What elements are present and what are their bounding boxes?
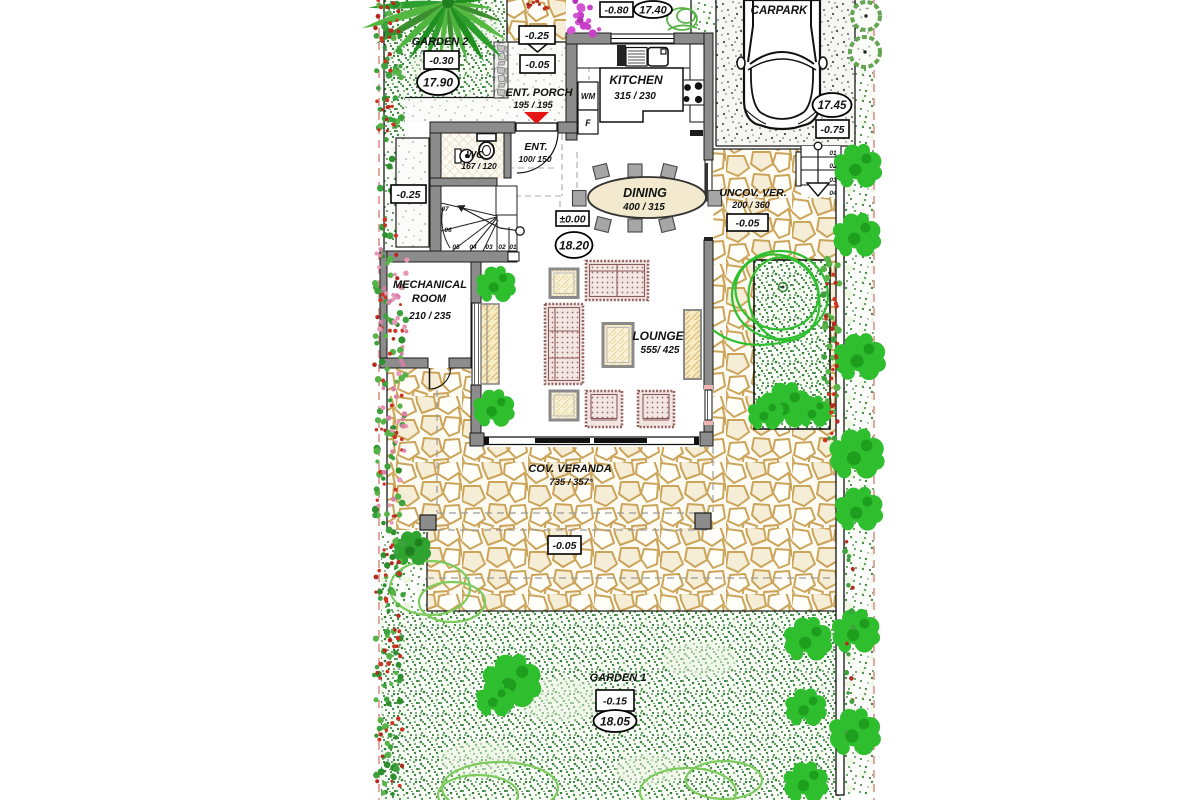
svg-text:735 / 357°: 735 / 357° bbox=[549, 477, 593, 488]
svg-text:-0.75: -0.75 bbox=[821, 124, 845, 136]
svg-text:04: 04 bbox=[469, 244, 477, 251]
svg-text:WC: WC bbox=[466, 149, 484, 161]
svg-text:02: 02 bbox=[498, 244, 506, 251]
svg-text:195 / 195: 195 / 195 bbox=[513, 100, 553, 111]
svg-text:-0.05: -0.05 bbox=[526, 59, 550, 71]
svg-text:555/ 425: 555/ 425 bbox=[641, 345, 680, 356]
svg-text:F: F bbox=[585, 118, 591, 128]
svg-text:LOUNGE: LOUNGE bbox=[632, 329, 684, 343]
svg-text:167 / 120: 167 / 120 bbox=[461, 161, 497, 171]
svg-text:GARDEN 1: GARDEN 1 bbox=[590, 672, 647, 684]
svg-text:WM: WM bbox=[581, 92, 596, 101]
svg-text:-0.05: -0.05 bbox=[553, 540, 577, 552]
svg-text:CARPARK: CARPARK bbox=[751, 5, 808, 17]
svg-text:200 / 360: 200 / 360 bbox=[731, 200, 770, 210]
svg-text:GARDEN 2: GARDEN 2 bbox=[412, 36, 469, 48]
svg-text:KITCHEN: KITCHEN bbox=[609, 73, 663, 87]
svg-text:18.05: 18.05 bbox=[600, 714, 630, 728]
svg-text:DINING: DINING bbox=[623, 186, 667, 200]
svg-text:-0.25: -0.25 bbox=[397, 189, 421, 201]
svg-text:01: 01 bbox=[509, 244, 517, 251]
svg-text:MECHANICAL: MECHANICAL bbox=[393, 279, 467, 291]
svg-text:03: 03 bbox=[485, 244, 493, 251]
svg-text:18.20: 18.20 bbox=[559, 238, 589, 252]
svg-text:07: 07 bbox=[441, 206, 449, 213]
svg-text:±0.00: ±0.00 bbox=[559, 213, 585, 225]
svg-text:-0.25: -0.25 bbox=[525, 30, 549, 42]
svg-text:-0.05: -0.05 bbox=[736, 217, 760, 229]
svg-text:315 / 230: 315 / 230 bbox=[614, 91, 656, 102]
svg-text:ROOM: ROOM bbox=[412, 293, 447, 305]
svg-text:ENT.: ENT. bbox=[524, 141, 547, 153]
svg-text:100/ 150: 100/ 150 bbox=[518, 154, 551, 164]
svg-text:ENT. PORCH: ENT. PORCH bbox=[505, 87, 573, 99]
svg-text:-0.80: -0.80 bbox=[605, 4, 629, 16]
svg-text:17.90: 17.90 bbox=[423, 75, 453, 89]
svg-text:06: 06 bbox=[444, 227, 452, 234]
svg-text:17.40: 17.40 bbox=[639, 4, 667, 16]
svg-text:05: 05 bbox=[452, 244, 460, 251]
svg-text:400 / 315: 400 / 315 bbox=[622, 202, 665, 213]
svg-text:-0.15: -0.15 bbox=[603, 695, 627, 707]
svg-text:-0.30: -0.30 bbox=[430, 55, 454, 67]
svg-text:UNCOV. VER.: UNCOV. VER. bbox=[719, 187, 786, 199]
svg-text:210 / 235: 210 / 235 bbox=[408, 311, 451, 322]
svg-text:COV. VERANDA: COV. VERANDA bbox=[528, 463, 611, 475]
svg-text:17.45: 17.45 bbox=[818, 100, 847, 112]
